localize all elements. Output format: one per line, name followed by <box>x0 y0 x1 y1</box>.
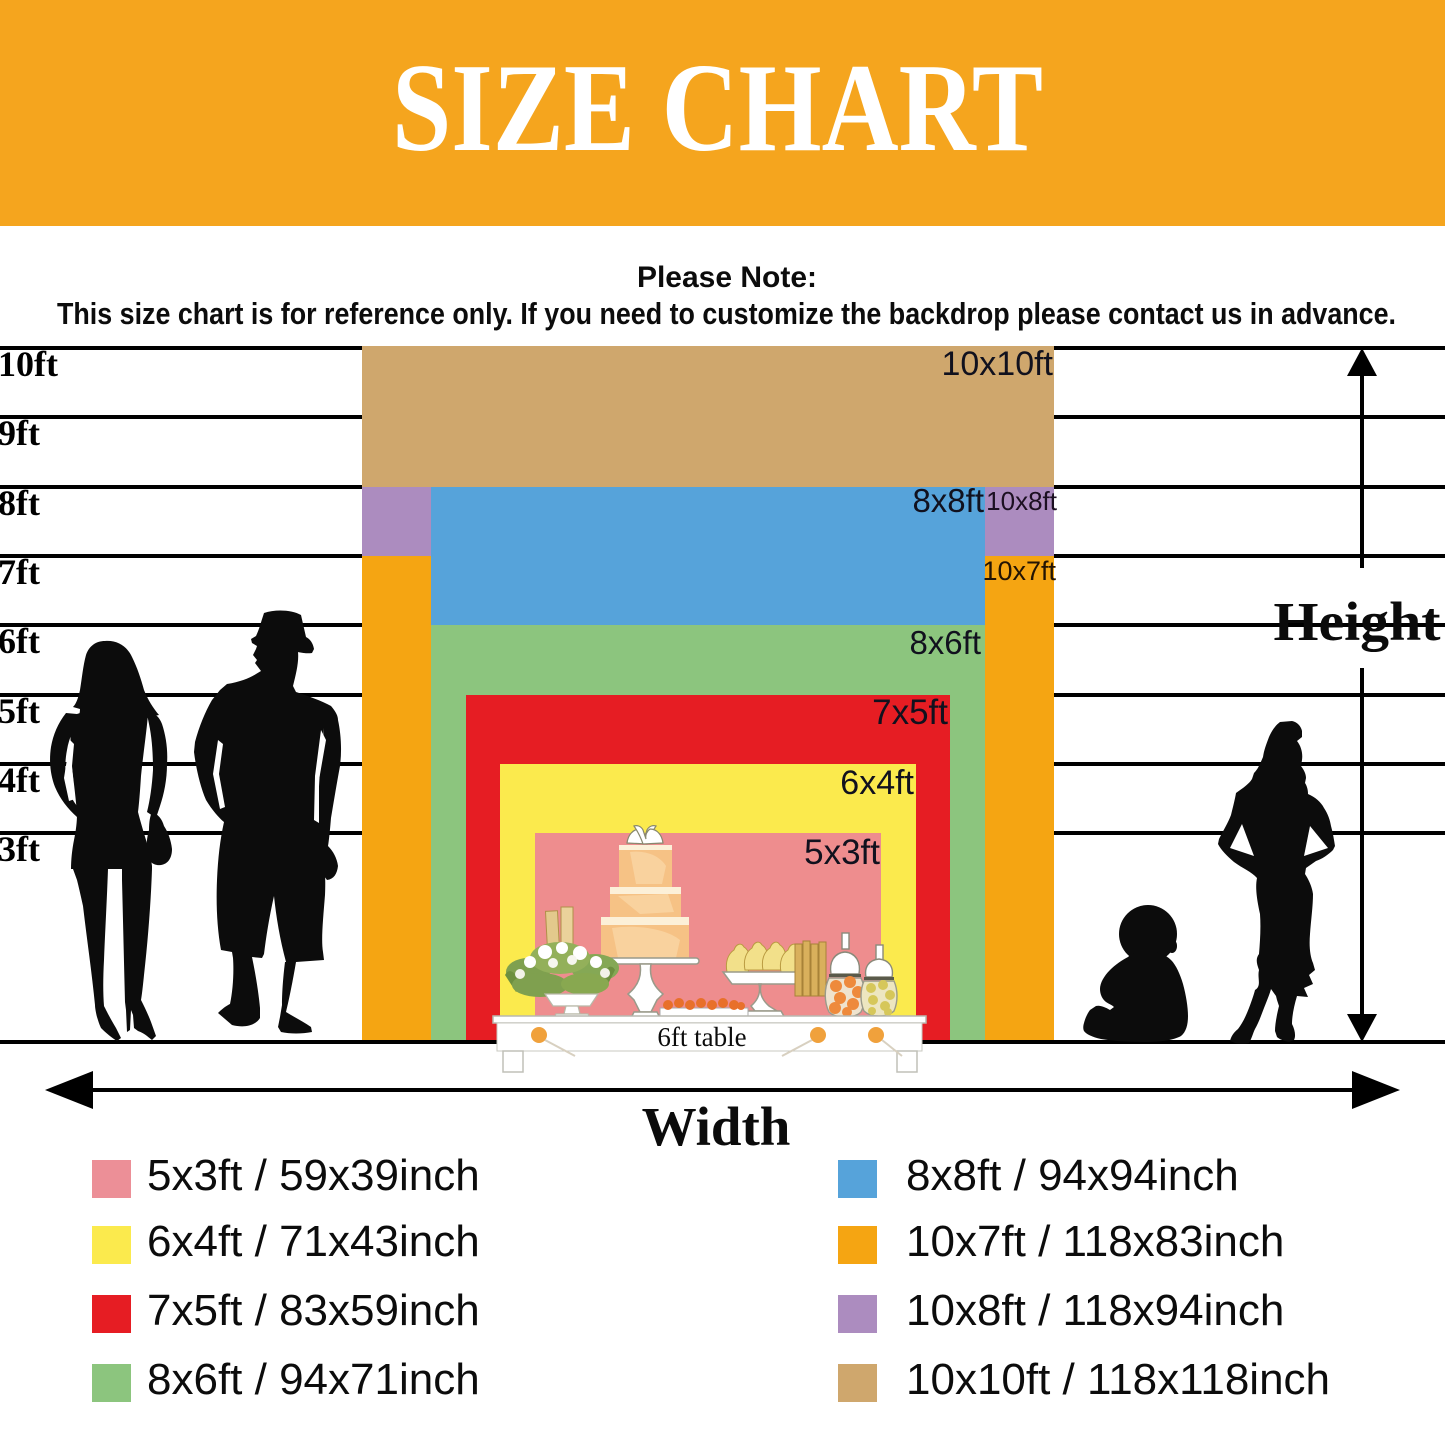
svg-text:6ft table: 6ft table <box>657 1022 746 1052</box>
svg-text:10x8ft: 10x8ft <box>986 486 1058 516</box>
svg-text:SIZE CHART: SIZE CHART <box>392 39 1043 178</box>
svg-text:7x5ft: 7x5ft <box>872 693 948 732</box>
svg-text:6ft: 6ft <box>0 621 40 661</box>
svg-text:10x7ft: 10x7ft <box>982 556 1056 586</box>
svg-text:Width: Width <box>642 1096 791 1157</box>
svg-text:7ft: 7ft <box>0 552 40 592</box>
svg-text:8x8ft: 8x8ft <box>912 482 984 519</box>
svg-text:5x3ft / 59x39inch: 5x3ft / 59x39inch <box>147 1151 480 1200</box>
svg-text:6x4ft: 6x4ft <box>840 764 914 802</box>
svg-text:10ft: 10ft <box>0 344 58 384</box>
svg-text:8x6ft / 94x71inch: 8x6ft / 94x71inch <box>147 1355 480 1404</box>
svg-text:7x5ft / 83x59inch: 7x5ft / 83x59inch <box>147 1286 480 1335</box>
svg-text:6x4ft / 71x43inch: 6x4ft / 71x43inch <box>147 1217 480 1266</box>
svg-text:8x6ft: 8x6ft <box>909 624 981 661</box>
svg-text:This size chart is for referen: This size chart is for reference only. I… <box>57 296 1396 331</box>
svg-text:10x10ft: 10x10ft <box>941 345 1053 383</box>
svg-text:10x8ft / 118x94inch: 10x8ft / 118x94inch <box>906 1286 1284 1335</box>
svg-text:8ft: 8ft <box>0 483 40 523</box>
svg-text:8x8ft / 94x94inch: 8x8ft / 94x94inch <box>906 1151 1239 1200</box>
svg-text:10x10ft / 118x118inch: 10x10ft / 118x118inch <box>906 1355 1330 1404</box>
svg-text:5ft: 5ft <box>0 691 40 731</box>
svg-text:5x3ft: 5x3ft <box>804 833 880 872</box>
svg-text:Please Note:: Please Note: <box>637 261 817 294</box>
svg-text:3ft: 3ft <box>0 829 40 869</box>
svg-text:4ft: 4ft <box>0 760 40 800</box>
svg-text:Height: Height <box>1274 591 1442 652</box>
svg-text:10x7ft / 118x83inch: 10x7ft / 118x83inch <box>906 1217 1284 1266</box>
svg-text:9ft: 9ft <box>0 413 40 453</box>
